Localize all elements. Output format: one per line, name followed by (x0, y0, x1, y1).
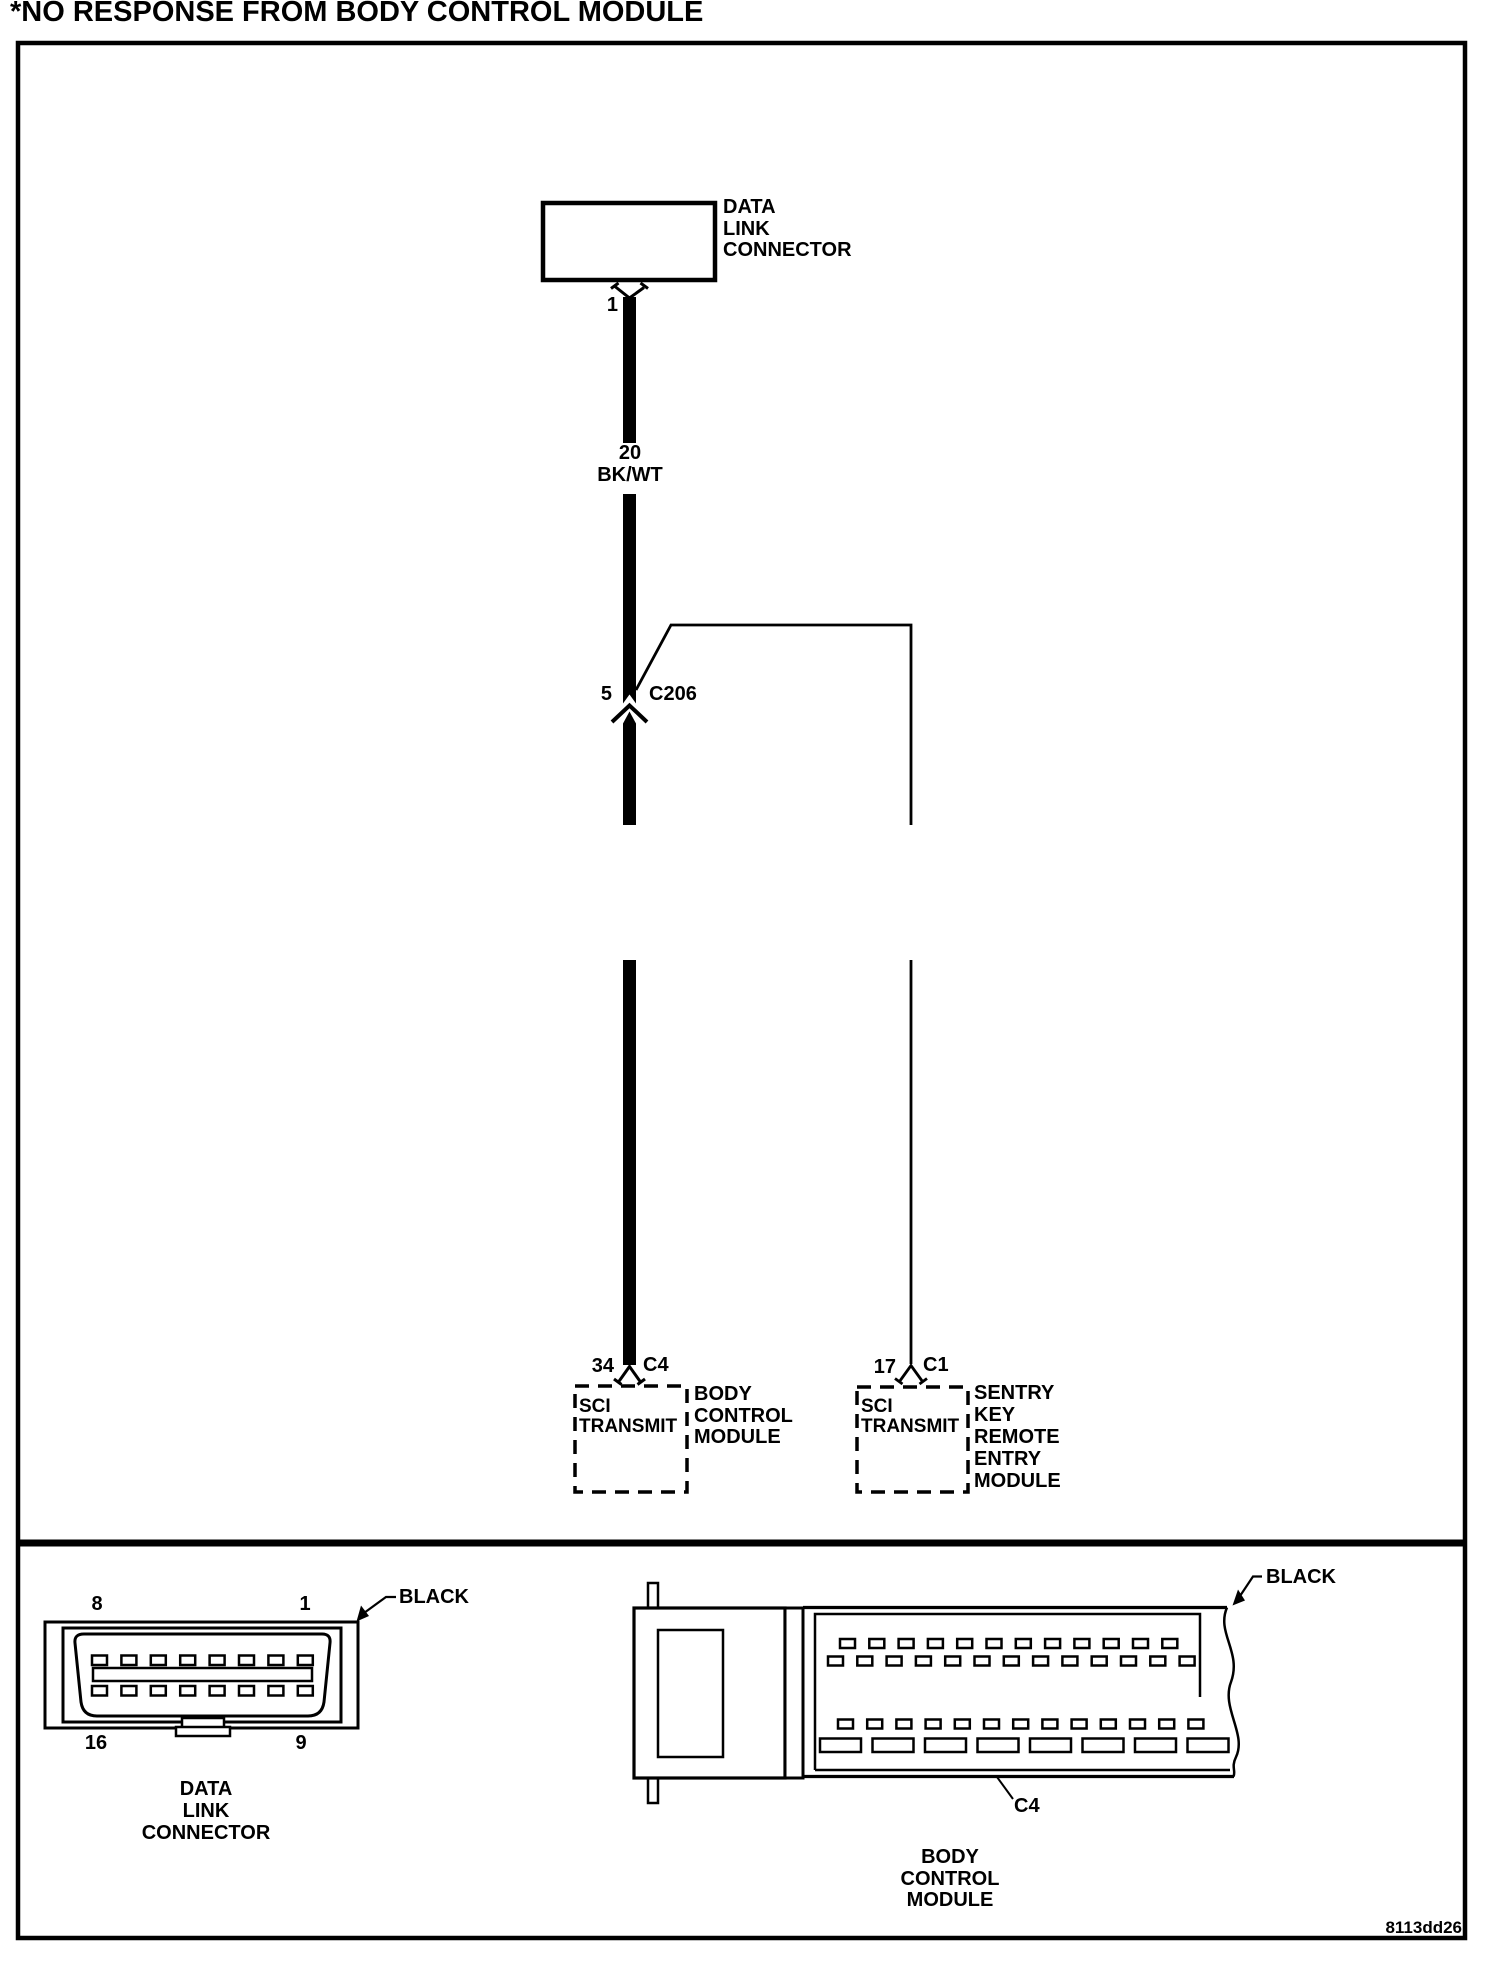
dlc-center-bar (93, 1668, 312, 1681)
connector-pin (1104, 1639, 1119, 1648)
connector-pin (210, 1686, 225, 1696)
connector-pin (298, 1686, 313, 1696)
connector-pin (298, 1656, 313, 1666)
skim-pin-number: 17 (868, 1357, 896, 1379)
connector-pin (210, 1656, 225, 1666)
connector-pin (1072, 1720, 1087, 1729)
connector-pin (928, 1639, 943, 1648)
connector-pin (869, 1639, 884, 1648)
connector-pin (1045, 1639, 1060, 1648)
connector-pin (828, 1657, 843, 1666)
connector-pin (820, 1739, 861, 1753)
bcm-pin-number: 34 (586, 1356, 614, 1378)
connector-pin (887, 1657, 902, 1666)
skim-module-label: SENTRY KEY REMOTE ENTRY MODULE (974, 1382, 1061, 1492)
connector-pin (1159, 1720, 1174, 1729)
connector-pin (1016, 1639, 1031, 1648)
connector-pin (1013, 1720, 1028, 1729)
dlc-view-pin-1: 1 (294, 1594, 316, 1616)
bcm-pin-row-2 (828, 1657, 1195, 1666)
connector-pin (978, 1739, 1019, 1753)
dlc-view-pin-16: 16 (78, 1733, 114, 1755)
connector-pin (180, 1656, 195, 1666)
connector-pin (1135, 1739, 1176, 1753)
bcm-pin-row-4 (820, 1739, 1229, 1753)
bcm-view-caption: BODY CONTROL MODULE (868, 1847, 1032, 1912)
connector-pin (1083, 1739, 1124, 1753)
connector-pin (151, 1686, 166, 1696)
connector-pin (925, 1739, 966, 1753)
bcm-view-c4-label: C4 (1014, 1796, 1040, 1818)
bcm-latch-rod-bottom (648, 1776, 658, 1803)
connector-pin (984, 1720, 999, 1729)
connector-pin (1188, 1720, 1203, 1729)
connector-pin (1092, 1657, 1107, 1666)
connector-pin (916, 1657, 931, 1666)
connector-pin (857, 1657, 872, 1666)
connector-pin (1180, 1657, 1195, 1666)
bcm-function-label: SCI TRANSMIT (579, 1397, 677, 1437)
connector-pin (268, 1656, 283, 1666)
wire-color-label: BK/WT (595, 465, 665, 487)
connector-pin (896, 1720, 911, 1729)
dlc-black-leader-arrow (357, 1597, 397, 1622)
bcm-latch-rod-top (648, 1583, 658, 1610)
connector-pin (899, 1639, 914, 1648)
connector-pin (180, 1686, 195, 1696)
wire-segment-below-c206 (623, 712, 636, 826)
bcm-pin-row-3 (838, 1720, 1203, 1729)
connector-pin (873, 1739, 914, 1753)
connector-pin (1004, 1657, 1019, 1666)
bcm-fork-symbol (614, 1367, 645, 1385)
connector-pin (239, 1686, 254, 1696)
connector-pin (1062, 1657, 1077, 1666)
wire-gauge-label: 20 (605, 443, 655, 465)
bcm-module-label: BODY CONTROL MODULE (694, 1384, 793, 1449)
connector-pin (1188, 1739, 1229, 1753)
connector-pin (975, 1657, 990, 1666)
bcm-hinge (785, 1608, 803, 1778)
connector-pin (1101, 1720, 1116, 1729)
c4-leader-line (997, 1777, 1013, 1799)
connector-pin (926, 1720, 941, 1729)
dlc-pin-row-top (92, 1656, 313, 1666)
branch-wire-upper (636, 625, 911, 825)
connector-pin (957, 1639, 972, 1648)
dlc-view-pin-9: 9 (290, 1733, 312, 1755)
bcm-black-leader-arrow (1233, 1577, 1263, 1606)
skim-connector-name: C1 (923, 1355, 949, 1377)
connector-pin (121, 1686, 136, 1696)
dlc-key-tab-base (176, 1727, 230, 1736)
dlc-view-pin-8: 8 (86, 1594, 108, 1616)
connector-pin (1042, 1720, 1057, 1729)
connector-pin (1130, 1720, 1145, 1729)
skim-function-label: SCI TRANSMIT (861, 1397, 959, 1437)
connector-pin (987, 1639, 1002, 1648)
figure-id: 8113dd26 (1378, 1917, 1462, 1939)
connector-pin (945, 1657, 960, 1666)
dlc-color-label: BLACK (399, 1587, 469, 1609)
dlc-pin-number: 1 (596, 295, 618, 317)
connector-pin (121, 1656, 136, 1666)
connector-pin (92, 1686, 107, 1696)
connector-pin (92, 1656, 107, 1666)
dlc-pin-row-bottom (92, 1686, 313, 1696)
wiring-diagram-page: *NO RESPONSE FROM BODY CONTROL MODULE DA… (0, 0, 1504, 1962)
bcm-latch-body (634, 1608, 785, 1778)
connector-pin (268, 1686, 283, 1696)
connector-pin (867, 1720, 882, 1729)
connector-pin (1033, 1657, 1048, 1666)
dlc-connector-drawing (45, 1622, 358, 1736)
c206-connector-name: C206 (649, 684, 697, 706)
connector-pin (955, 1720, 970, 1729)
connector-pin (1162, 1639, 1177, 1648)
connector-pin (1150, 1657, 1165, 1666)
connector-pin (1121, 1657, 1136, 1666)
connector-pin (1030, 1739, 1071, 1753)
connector-pin (151, 1656, 166, 1666)
dlc-symbol-box (543, 203, 715, 280)
connector-pin (840, 1639, 855, 1648)
dlc-symbol-label: DATA LINK CONNECTOR (723, 197, 852, 262)
page-title: *NO RESPONSE FROM BODY CONTROL MODULE (10, 2, 703, 24)
connector-pin (239, 1656, 254, 1666)
bcm-connector-name: C4 (643, 1355, 669, 1377)
bcm-pin-row-1 (840, 1639, 1177, 1648)
bcm-connector-drawing (634, 1583, 1239, 1803)
wiring-diagram-canvas (0, 0, 1504, 1962)
wire-segment-mid (623, 494, 636, 704)
bcm-color-label: BLACK (1266, 1567, 1336, 1589)
connector-pin (838, 1720, 853, 1729)
c206-pin-number: 5 (588, 684, 612, 706)
connector-pin (1074, 1639, 1089, 1648)
dlc-view-caption: DATA LINK CONNECTOR (138, 1778, 274, 1844)
connector-pin (1133, 1639, 1148, 1648)
